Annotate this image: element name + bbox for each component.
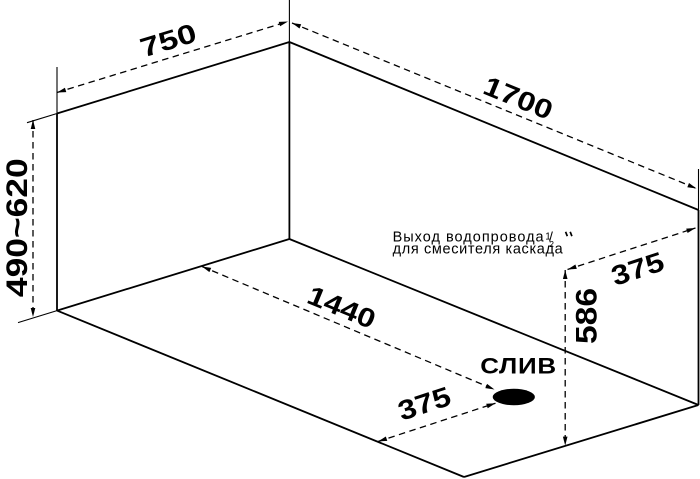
svg-text:490~620: 490~620 <box>0 158 33 297</box>
svg-text:СЛИВ: СЛИВ <box>480 354 557 379</box>
svg-text:для смесителя каскада: для смесителя каскада <box>393 242 564 258</box>
svg-text:586: 586 <box>569 288 603 344</box>
